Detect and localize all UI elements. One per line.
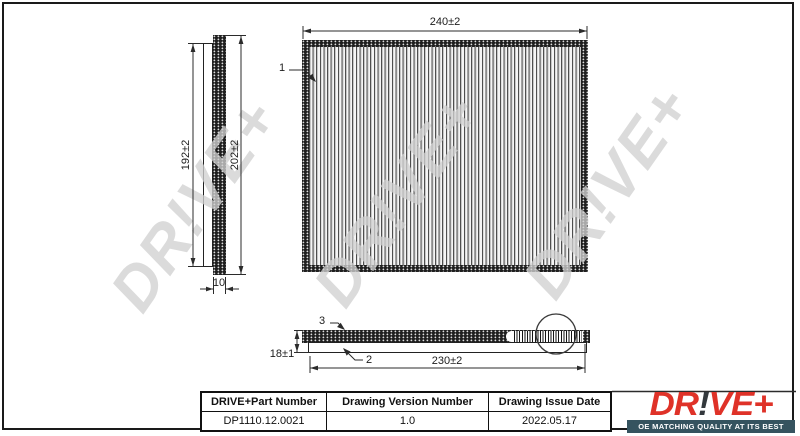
logo-text-dr: DR [650, 389, 698, 419]
table-header-part-number: DRIVE+Part Number [202, 393, 327, 412]
dim-18-label: 18±1 [270, 348, 294, 360]
side-view-frame [203, 43, 213, 267]
table-value-part-number: DP1110.12.0021 [202, 412, 327, 431]
logo-exclamation: ! [698, 389, 709, 419]
dim-240-label: 240±2 [430, 16, 461, 28]
logo-text-ve-plus: VE+ [709, 389, 773, 419]
callout-3-label: 3 [319, 315, 325, 327]
bottom-view-frame [308, 342, 587, 353]
filter-top-view [302, 40, 588, 272]
table-header-version: Drawing Version Number [327, 393, 489, 412]
table-header-issue-date: Drawing Issue Date [489, 393, 610, 412]
filter-pleat-media [309, 47, 581, 265]
title-block-table: DRIVE+Part Number Drawing Version Number… [200, 391, 612, 432]
callout-2-label: 2 [366, 354, 372, 366]
watermark-left: DR!VE+ [97, 86, 293, 324]
logo-tagline: OE MATCHING QUALITY AT ITS BEST [627, 420, 795, 433]
dim-192-label: 192±2 [180, 140, 192, 171]
drive-plus-logo: DR!VE+ [621, 389, 800, 419]
dim-230-label: 230±2 [432, 355, 463, 367]
table-value-version: 1.0 [327, 412, 489, 431]
technical-drawing-page: DR!VE+ DR!VE+ DR!VE+ [0, 0, 800, 436]
dim-10-label: 10 [213, 277, 225, 289]
bottom-view-pleat-detail [514, 331, 582, 342]
dim-202-label: 202±2 [229, 140, 241, 171]
callout-1-label: 1 [279, 62, 285, 74]
table-value-issue-date: 2022.05.17 [489, 412, 610, 431]
side-view-filter-strip [213, 35, 226, 275]
